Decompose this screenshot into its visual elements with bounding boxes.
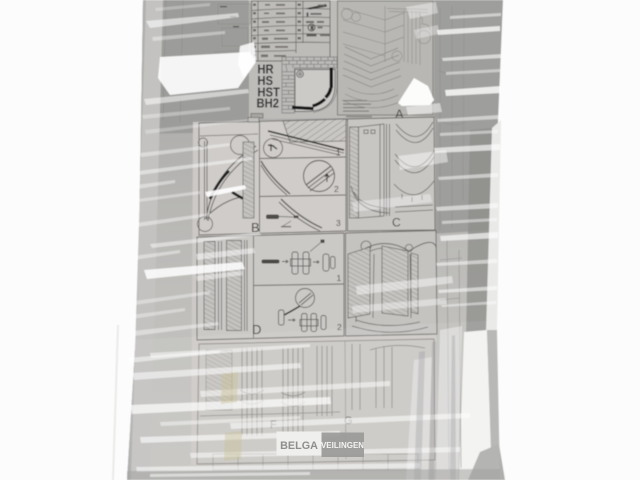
svg-text:BELGA: BELGA	[280, 440, 318, 452]
svg-text:1: 1	[337, 273, 342, 283]
svg-text:BH2: BH2	[257, 96, 280, 111]
svg-text:C: C	[392, 216, 401, 230]
svg-text:2: 2	[334, 184, 339, 194]
svg-text:3: 3	[336, 218, 341, 228]
svg-text:1: 1	[336, 148, 341, 158]
svg-text:VEILINGEN: VEILINGEN	[321, 441, 364, 450]
